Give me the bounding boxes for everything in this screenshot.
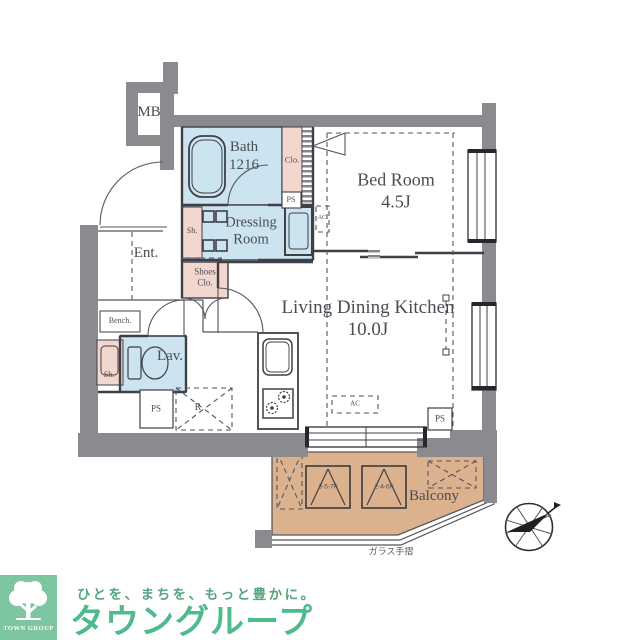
label-ldk: Living Dining Kitchen xyxy=(281,298,454,318)
label-shoes-1: Shoes xyxy=(194,267,216,276)
stove-icon xyxy=(263,389,293,418)
kitchen-counter xyxy=(258,333,298,429)
balcony-area xyxy=(266,452,494,545)
ldk-window xyxy=(472,302,496,390)
label-evac-hatch-1: 3-5-7F xyxy=(318,485,337,492)
compass-icon xyxy=(506,502,562,551)
label-ac-bedroom: AC xyxy=(318,215,326,221)
label-closet: Clo. xyxy=(285,156,299,165)
label-mb: MB xyxy=(137,105,160,121)
label-evac-hatch-2: 2-4-6F xyxy=(374,485,393,492)
label-ps-1: PS xyxy=(287,196,296,204)
label-dressing-2: Room xyxy=(233,232,268,247)
label-balcony: Balcony xyxy=(409,489,459,505)
brand-name: タウングループ xyxy=(70,594,313,640)
label-dressing-1: Dressing xyxy=(225,215,277,230)
label-glass-rail: ガラス手摺 xyxy=(369,547,414,556)
label-shoes-2: Clo. xyxy=(197,278,212,287)
label-ps-3: PS xyxy=(435,414,445,423)
label-entrance: Ent. xyxy=(134,246,159,262)
bedroom-window xyxy=(468,149,496,243)
label-bench: Bench. xyxy=(109,317,131,325)
label-bedroom: Bed Room xyxy=(357,171,435,190)
label-lavatory: Lav. xyxy=(157,349,183,365)
logo-caption: TOWN GROUP xyxy=(0,625,57,632)
label-bedroom-size: 4.5J xyxy=(381,193,411,212)
label-bath-size: 1216 xyxy=(229,158,259,174)
label-sh-1: Sh. xyxy=(187,227,197,235)
label-ps-2: PS xyxy=(151,404,161,413)
floor-plan-page: MB Bath 1216 Clo. PS Bed Room 4.5J Dress… xyxy=(0,0,640,640)
label-bath: Bath xyxy=(230,140,258,156)
label-refrigerator: R xyxy=(195,403,202,414)
label-ac: AC xyxy=(350,400,360,407)
balcony-window xyxy=(305,427,427,447)
floorplan-drawing xyxy=(0,0,640,640)
sink-icon xyxy=(263,339,292,375)
label-ldk-size: 10.0J xyxy=(348,320,389,340)
label-sh-2: Sh. xyxy=(104,371,114,379)
